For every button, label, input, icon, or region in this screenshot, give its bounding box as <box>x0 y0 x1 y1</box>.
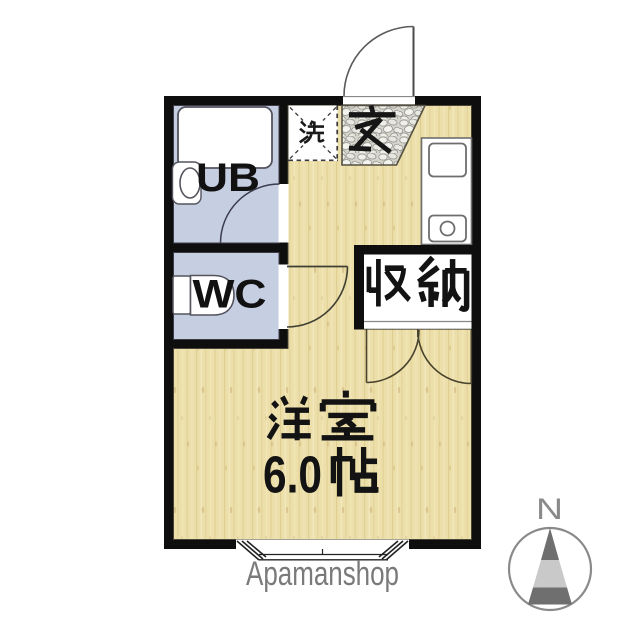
svg-text:WC: WC <box>193 273 267 317</box>
svg-text:Apamanshop: Apamanshop <box>246 555 399 593</box>
svg-text:N: N <box>536 493 563 526</box>
svg-text:UB: UB <box>196 156 260 200</box>
svg-text:6.0: 6.0 <box>263 447 322 505</box>
